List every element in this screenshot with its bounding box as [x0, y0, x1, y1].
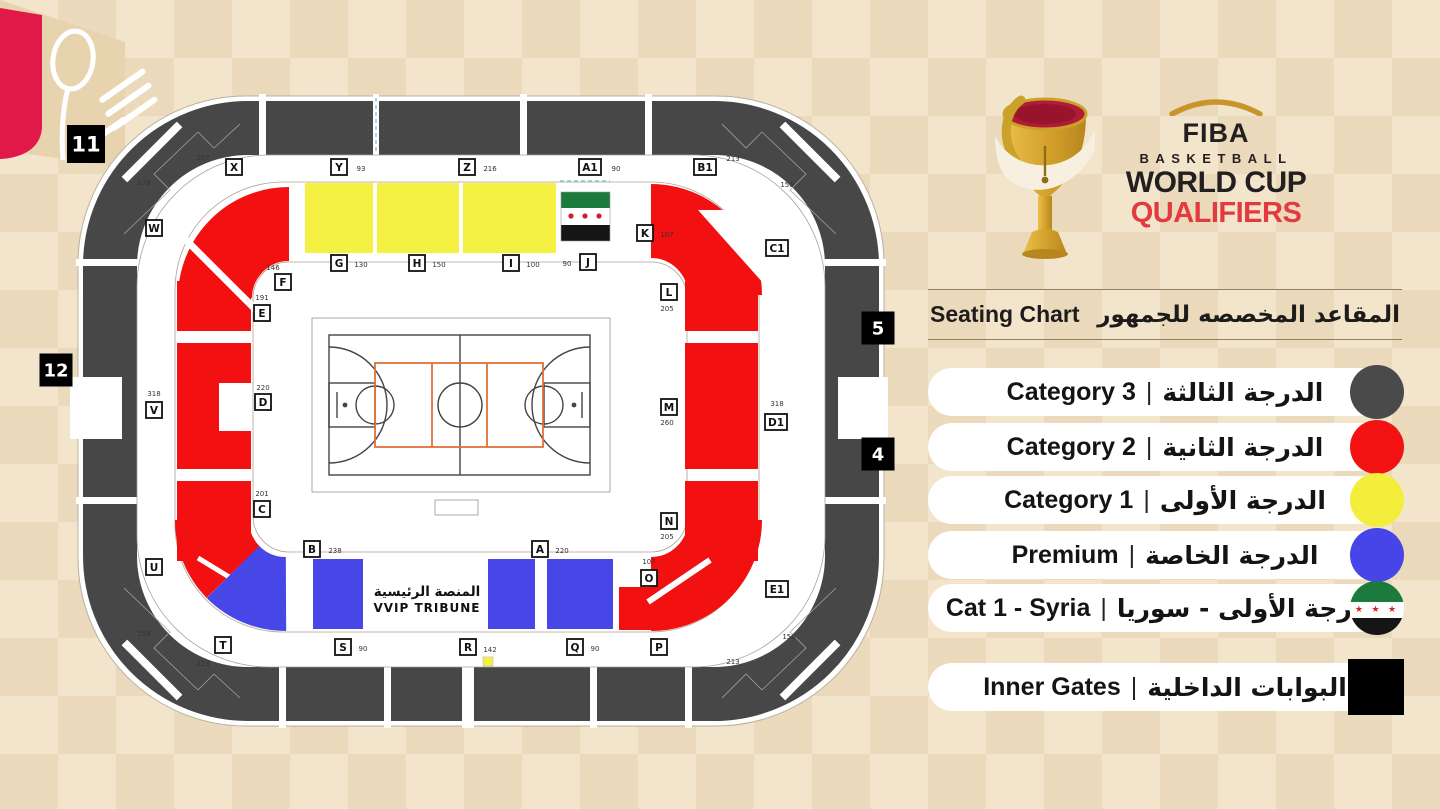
svg-text:C: C	[258, 504, 266, 516]
svg-text:213: 213	[196, 660, 209, 668]
section-label-D: D220	[255, 384, 271, 410]
legend-separator: |	[1129, 541, 1136, 570]
trophy-icon	[985, 84, 1107, 260]
gate-12: 12	[40, 354, 73, 387]
legend-label-ar: الدرجة الأولى - سوريا	[1117, 594, 1384, 623]
svg-text:A: A	[536, 544, 545, 556]
vvip-label-ar: المنصة الرئيسية	[374, 584, 481, 600]
svg-text:216: 216	[483, 165, 497, 173]
svg-text:U: U	[150, 562, 159, 574]
svg-text:A1: A1	[582, 162, 597, 174]
svg-text:B1: B1	[697, 162, 712, 174]
svg-text:156: 156	[780, 181, 794, 189]
fiba-logo-text: FIBA BASKETBALL WORLD CUP QUALIFIERS	[1118, 98, 1314, 228]
svg-text:S: S	[339, 642, 347, 654]
fiba-logo: FIBA BASKETBALL WORLD CUP QUALIFIERS	[975, 82, 1315, 262]
legend-label-ar: الدرجة الثانية	[1162, 433, 1323, 462]
svg-text:V: V	[150, 405, 159, 417]
svg-text:142: 142	[483, 646, 496, 654]
legend-separator: |	[1146, 433, 1153, 462]
svg-text:220: 220	[256, 384, 269, 392]
svg-text:W: W	[148, 223, 160, 235]
title-ar: المقاعد المخصصه للجمهور	[1097, 302, 1400, 328]
category1-sections	[305, 183, 556, 253]
svg-text:O: O	[645, 573, 654, 585]
svg-text:P: P	[655, 642, 663, 654]
svg-text:N: N	[665, 516, 674, 528]
svg-text:146: 146	[266, 264, 280, 272]
legend-label-en: Premium	[1012, 541, 1119, 570]
section-label-V: V318	[146, 390, 162, 418]
svg-text:X: X	[230, 162, 238, 174]
svg-text:220: 220	[555, 547, 568, 555]
poster: { "logo": { "fiba": "FIBA", "basketball"…	[0, 0, 1440, 809]
svg-text:5: 5	[872, 318, 885, 339]
section-label-O: O107	[641, 558, 657, 586]
svg-text:90: 90	[359, 645, 368, 653]
svg-text:213: 213	[726, 155, 739, 163]
legend-label-ar: البوابات الداخلية	[1147, 673, 1347, 702]
title-en: Seating Chart	[930, 301, 1080, 328]
legend-label-ar: الدرجة الخاصة	[1145, 541, 1318, 570]
svg-text:207: 207	[196, 154, 209, 162]
svg-text:J: J	[585, 257, 590, 269]
svg-text:Q: Q	[571, 642, 580, 654]
svg-text:205: 205	[660, 533, 673, 541]
svg-text:130: 130	[354, 261, 367, 269]
gate-11: 11	[67, 125, 105, 163]
section-label-C: C201	[254, 490, 270, 517]
svg-text:205: 205	[660, 305, 673, 313]
svg-text:238: 238	[328, 547, 341, 555]
scorer-table	[435, 500, 478, 515]
logo-world-cup: WORLD CUP	[1118, 168, 1314, 198]
svg-text:I: I	[509, 258, 513, 270]
section-d-notch	[219, 383, 251, 431]
svg-text:90: 90	[563, 260, 572, 268]
small-highlight	[483, 657, 493, 666]
gate-4: 4	[862, 438, 895, 471]
legend-separator: |	[1100, 594, 1107, 623]
syria-flag-section	[561, 192, 610, 241]
svg-text:156: 156	[782, 633, 796, 641]
svg-text:318: 318	[147, 390, 160, 398]
svg-text:90: 90	[612, 165, 621, 173]
legend-item-inner-gates: Inner Gates | البوابات الداخلية	[928, 663, 1402, 711]
premium-marker	[1350, 528, 1404, 582]
svg-text:Z: Z	[463, 162, 471, 174]
svg-text:93: 93	[357, 165, 366, 173]
logo-basketball: BASKETBALL	[1118, 151, 1314, 166]
section-label-E: E191	[254, 294, 270, 321]
category3-marker	[1350, 365, 1404, 419]
svg-text:12: 12	[43, 360, 68, 381]
svg-text:Y: Y	[334, 162, 343, 174]
svg-text:107: 107	[642, 558, 655, 566]
legend-separator: |	[1143, 486, 1150, 515]
svg-text:D: D	[259, 397, 268, 409]
category2-marker	[1350, 420, 1404, 474]
svg-text:T: T	[219, 640, 227, 652]
legend-separator: |	[1146, 378, 1153, 407]
inner-gates-marker	[1348, 659, 1404, 715]
svg-text:D1: D1	[768, 417, 784, 429]
legend-item-category3: Category 3 | الدرجة الثالثة	[928, 368, 1402, 416]
svg-text:191: 191	[255, 294, 268, 302]
legend-label-en: Category 3	[1007, 378, 1136, 407]
legend-item-premium: Premium | الدرجة الخاصة	[928, 531, 1402, 579]
legend-item-category1: Category 1 | الدرجة الأولى	[928, 476, 1402, 524]
svg-text:213: 213	[726, 658, 739, 666]
legend-item-category2: Category 2 | الدرجة الثانية	[928, 423, 1402, 471]
svg-text:260: 260	[660, 419, 673, 427]
svg-text:G: G	[335, 258, 344, 270]
svg-text:11: 11	[71, 133, 100, 157]
svg-text:201: 201	[255, 490, 268, 498]
legend-item-cat1-syria: Cat 1 - Syria | الدرجة الأولى - سوريا ★ …	[928, 584, 1402, 632]
legend-label-en: Category 1	[1004, 486, 1133, 515]
svg-text:B: B	[308, 544, 316, 556]
svg-text:158: 158	[137, 630, 150, 638]
svg-text:150: 150	[432, 261, 445, 269]
svg-text:L: L	[666, 287, 673, 299]
svg-text:176: 176	[137, 179, 151, 187]
svg-text:E1: E1	[770, 584, 784, 596]
svg-text:M: M	[664, 402, 674, 414]
gate-5: 5	[862, 312, 895, 345]
legend-separator: |	[1131, 673, 1138, 702]
legend-label-ar: الدرجة الثالثة	[1162, 378, 1323, 407]
svg-text:H: H	[413, 258, 422, 270]
svg-text:R: R	[464, 642, 472, 654]
svg-text:E: E	[258, 308, 265, 320]
svg-text:318: 318	[770, 400, 783, 408]
vvip-label-en: VVIP TRIBUNE	[373, 601, 480, 615]
svg-text:F: F	[279, 277, 286, 289]
seating-chart-title: Seating Chart المقاعد المخصصه للجمهور	[928, 289, 1402, 340]
legend-label-en: Category 2	[1007, 433, 1136, 462]
legend-label-en: Cat 1 - Syria	[946, 594, 1091, 623]
basketball-court	[312, 318, 610, 515]
legend-label-ar: الدرجة الأولى	[1160, 486, 1326, 515]
legend-label-en: Inner Gates	[983, 673, 1121, 702]
svg-text:C1: C1	[769, 243, 784, 255]
svg-text:100: 100	[526, 261, 539, 269]
svg-text:90: 90	[591, 645, 600, 653]
fiba-arc-icon	[1164, 98, 1268, 116]
syria-flag-marker: ★ ★ ★	[1350, 581, 1404, 635]
logo-qualifiers: QUALIFIERS	[1118, 198, 1314, 228]
fiba-wordmark: FIBA	[1118, 121, 1314, 145]
svg-text:K: K	[641, 228, 650, 240]
category1-marker	[1350, 473, 1404, 527]
svg-text:107: 107	[660, 231, 673, 239]
svg-text:4: 4	[872, 444, 885, 465]
